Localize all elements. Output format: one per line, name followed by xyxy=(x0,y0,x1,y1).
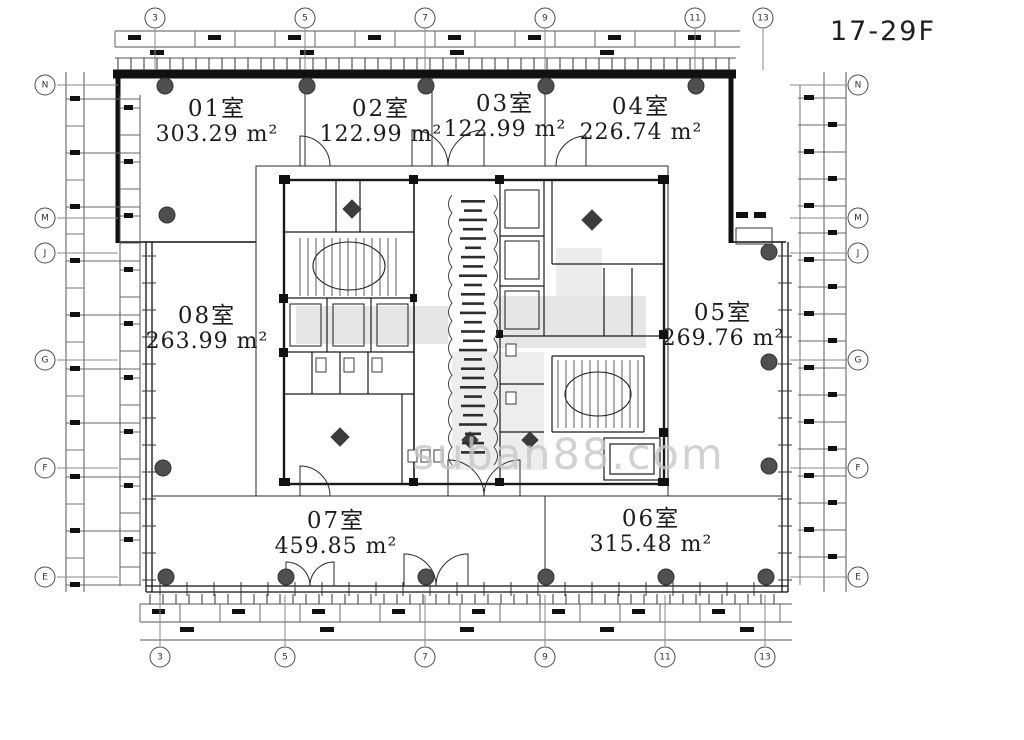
room-number: 07室 xyxy=(275,508,398,534)
floorplan-canvas: 17-29F suban88.com 01室303.29 m²02室122.99… xyxy=(0,0,1024,740)
column xyxy=(538,569,554,585)
grid-axis-top-3: 3 xyxy=(145,8,166,29)
column xyxy=(688,78,704,94)
column xyxy=(758,569,774,585)
grid-axis-right-F: F xyxy=(848,458,869,479)
watermark: suban88.com xyxy=(412,430,725,480)
room-label-02: 02室122.99 m² xyxy=(320,96,443,148)
grid-axis-bottom-13: 13 xyxy=(755,647,776,668)
room-label-03: 03室122.99 m² xyxy=(444,91,567,143)
room-number: 03室 xyxy=(444,91,567,117)
grid-axis-top-9: 9 xyxy=(535,8,556,29)
grid-axis-top-7: 7 xyxy=(415,8,436,29)
column xyxy=(299,78,315,94)
grid-axis-right-J: J xyxy=(848,243,869,264)
grid-axis-left-M: M xyxy=(35,208,56,229)
room-area: 263.99 m² xyxy=(146,329,269,354)
column xyxy=(278,569,294,585)
room-number: 08室 xyxy=(146,303,269,329)
room-label-07: 07室459.85 m² xyxy=(275,508,398,560)
grid-axis-right-G: G xyxy=(848,350,869,371)
column xyxy=(761,458,777,474)
column xyxy=(155,460,171,476)
room-area: 303.29 m² xyxy=(156,122,279,147)
column xyxy=(418,78,434,94)
grid-axis-bottom-11: 11 xyxy=(655,647,676,668)
room-area: 269.76 m² xyxy=(662,326,785,351)
grid-axis-bottom-7: 7 xyxy=(415,647,436,668)
column xyxy=(761,244,777,260)
column xyxy=(761,354,777,370)
column xyxy=(658,569,674,585)
drawing-title: 17-29F xyxy=(830,16,936,47)
column xyxy=(158,569,174,585)
room-number: 04室 xyxy=(580,94,703,120)
room-label-01: 01室303.29 m² xyxy=(156,96,279,148)
room-area: 226.74 m² xyxy=(580,120,703,145)
column xyxy=(159,207,175,223)
room-number: 05室 xyxy=(662,300,785,326)
grid-axis-bottom-9: 9 xyxy=(535,647,556,668)
room-number: 06室 xyxy=(590,506,713,532)
room-area: 122.99 m² xyxy=(444,117,567,142)
room-label-05: 05室269.76 m² xyxy=(662,300,785,352)
room-number: 02室 xyxy=(320,96,443,122)
grid-axis-right-M: M xyxy=(848,208,869,229)
room-label-04: 04室226.74 m² xyxy=(580,94,703,146)
grid-axis-left-F: F xyxy=(35,458,56,479)
grid-axis-left-J: J xyxy=(35,243,56,264)
grid-axis-left-G: G xyxy=(35,350,56,371)
room-area: 459.85 m² xyxy=(275,534,398,559)
grid-axis-left-N: N xyxy=(35,75,56,96)
column xyxy=(157,78,173,94)
room-area: 122.99 m² xyxy=(320,122,443,147)
grid-axis-top-11: 11 xyxy=(685,8,706,29)
grid-axis-left-E: E xyxy=(35,567,56,588)
room-label-06: 06室315.48 m² xyxy=(590,506,713,558)
grid-axis-bottom-5: 5 xyxy=(275,647,296,668)
grid-axis-bottom-3: 3 xyxy=(150,647,171,668)
room-label-08: 08室263.99 m² xyxy=(146,303,269,355)
grid-axis-top-5: 5 xyxy=(295,8,316,29)
room-number: 01室 xyxy=(156,96,279,122)
grid-axis-right-N: N xyxy=(848,75,869,96)
column xyxy=(418,569,434,585)
room-area: 315.48 m² xyxy=(590,532,713,557)
grid-axis-right-E: E xyxy=(848,567,869,588)
grid-axis-top-13: 13 xyxy=(753,8,774,29)
